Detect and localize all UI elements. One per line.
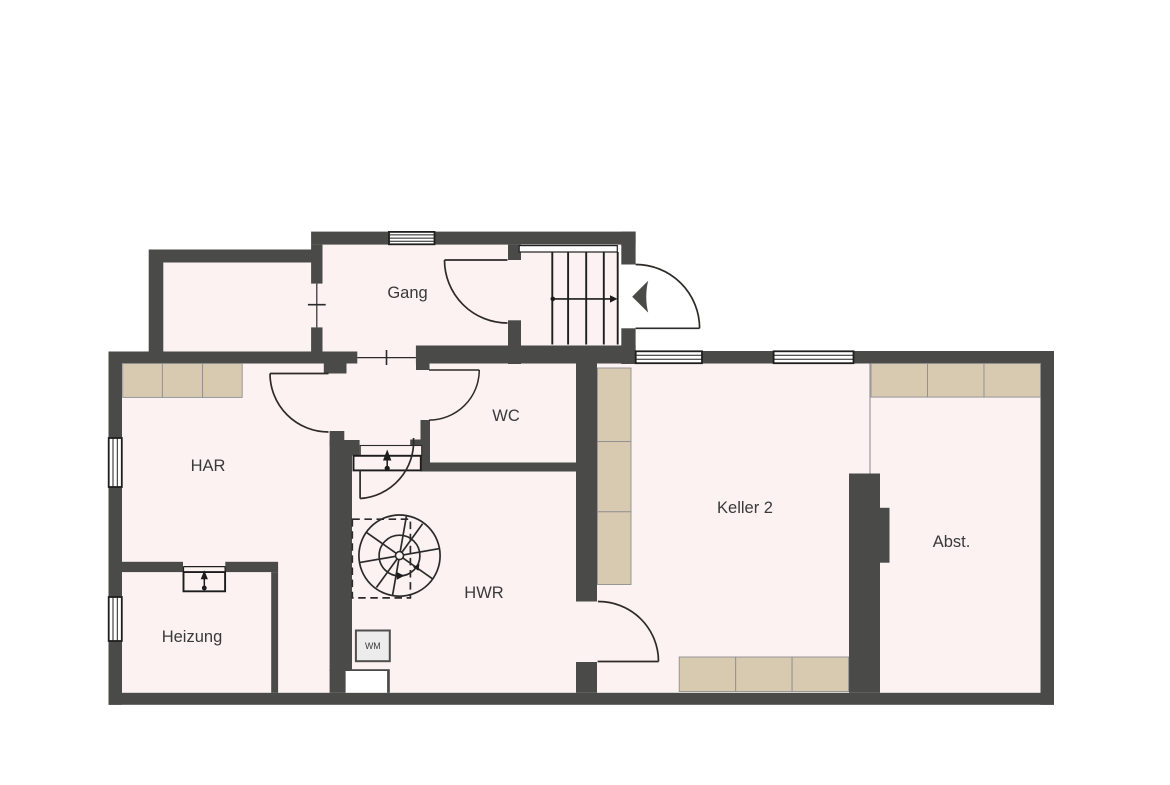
svg-text:Abst.: Abst. <box>933 533 971 551</box>
svg-text:Gang: Gang <box>387 284 427 302</box>
svg-text:HWR: HWR <box>464 584 503 602</box>
svg-text:Keller 2: Keller 2 <box>717 499 773 517</box>
svg-text:WM: WM <box>365 641 381 651</box>
svg-text:HAR: HAR <box>191 457 226 475</box>
svg-text:WC: WC <box>492 407 520 425</box>
svg-text:Heizung: Heizung <box>162 628 223 646</box>
